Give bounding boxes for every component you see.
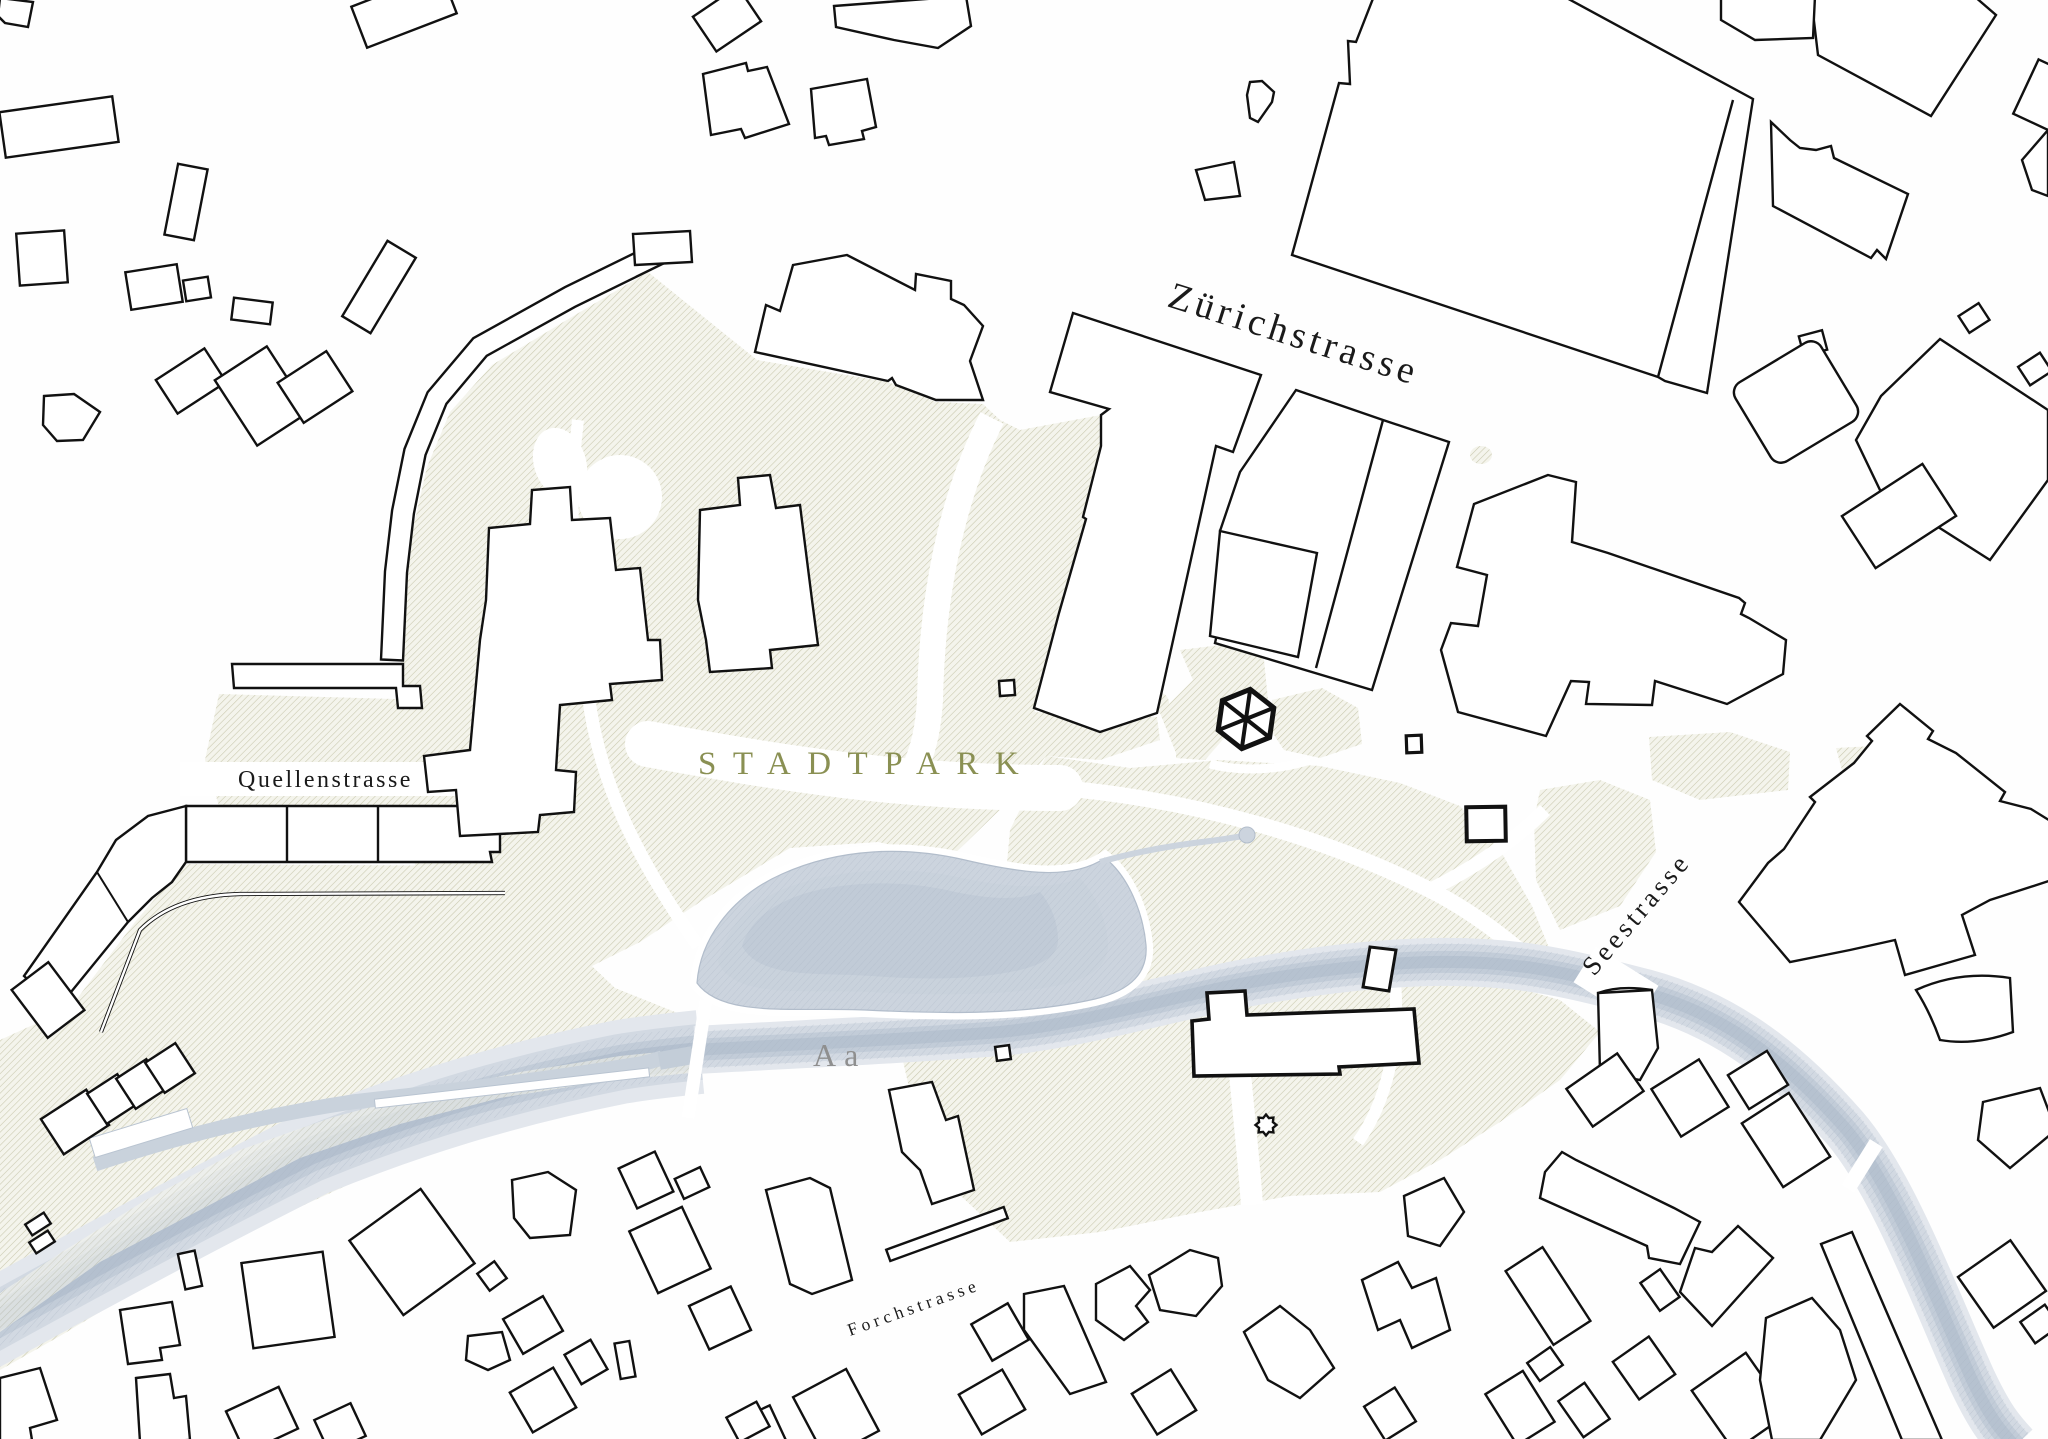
svg-text:Quellenstrasse: Quellenstrasse [238,767,413,793]
svg-text:Aa: Aa [813,1037,866,1073]
svg-text:STADTPARK: STADTPARK [698,746,1035,782]
